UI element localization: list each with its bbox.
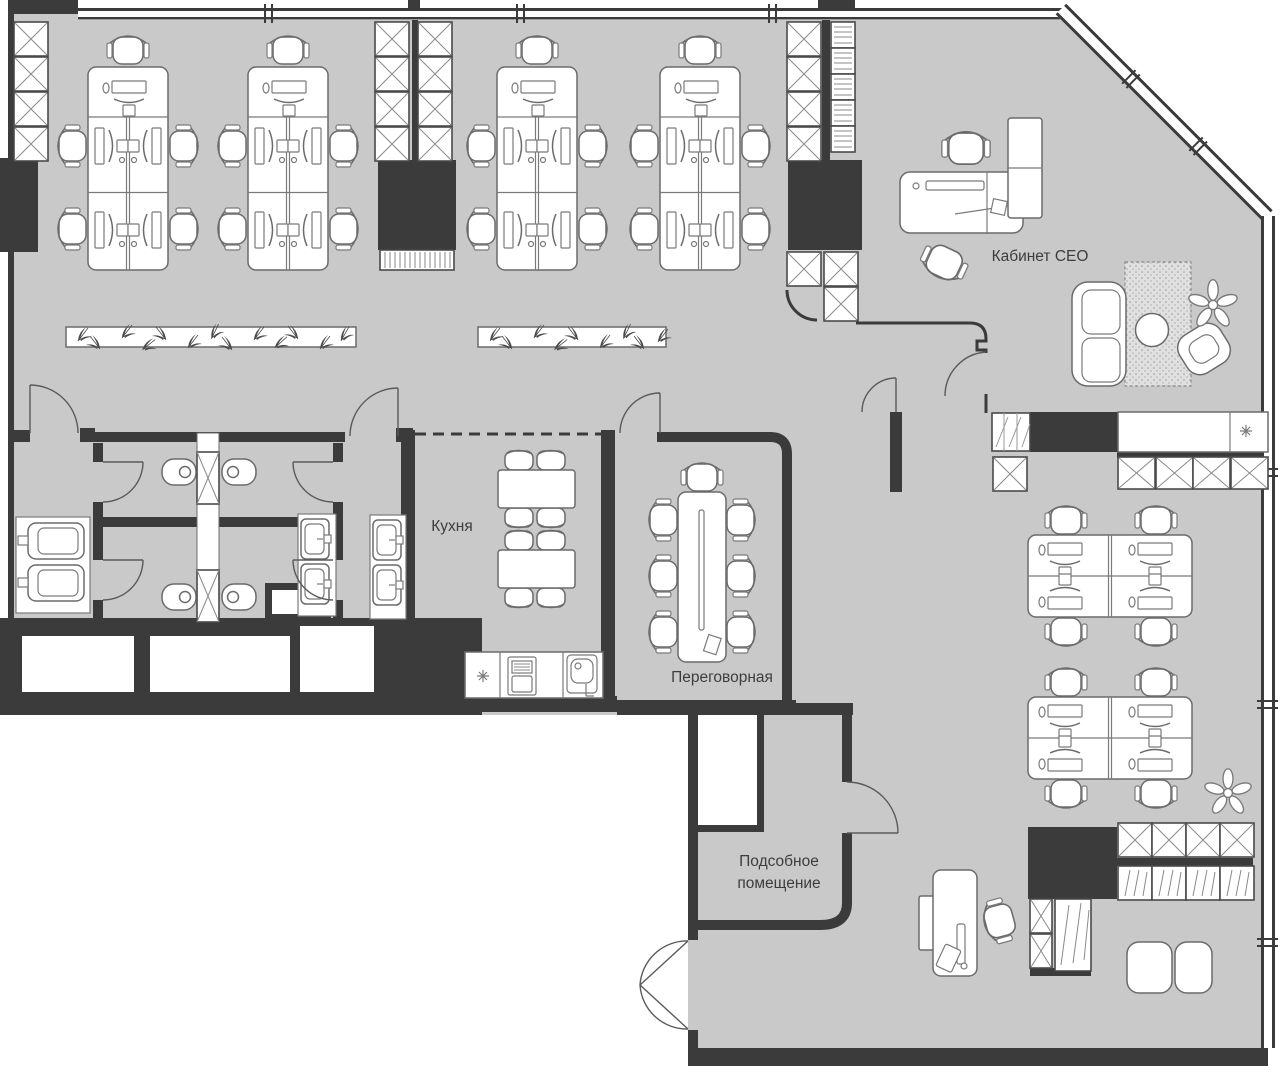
toilet [162, 459, 196, 485]
coffee-table [1136, 314, 1169, 347]
shaft [22, 636, 134, 692]
dining-table [498, 550, 575, 588]
sink [301, 519, 331, 559]
floor-plan-page: Кабинет CEO Кухня Переговорная Подсобное… [0, 0, 1280, 1074]
shaft [300, 626, 374, 692]
toilet [162, 584, 196, 610]
pouf [1127, 942, 1212, 993]
oven [508, 657, 536, 695]
cabinet-column-left [14, 22, 48, 161]
room-label-utility-line1: Подсобное [739, 853, 819, 870]
sink [18, 523, 84, 559]
room-label-kitchen: Кухня [431, 518, 472, 535]
room-label-meeting: Переговорная [671, 669, 773, 686]
sink [18, 565, 84, 601]
room-label-ceo: Кабинет CEO [992, 248, 1089, 265]
toilet [222, 459, 256, 485]
sink [373, 520, 403, 560]
kitchen-counter [465, 652, 603, 698]
toilet [222, 584, 256, 610]
dining-table [498, 470, 575, 508]
sink [373, 565, 403, 605]
shaft [698, 715, 757, 825]
kitchen-sink [567, 655, 597, 696]
floor-plan: Кабинет CEO Кухня Переговорная Подсобное… [0, 0, 1280, 1074]
sink [301, 564, 331, 604]
room-label-utility-line2: помещение [737, 875, 820, 892]
sofa [1072, 282, 1126, 386]
shaft [150, 636, 290, 692]
